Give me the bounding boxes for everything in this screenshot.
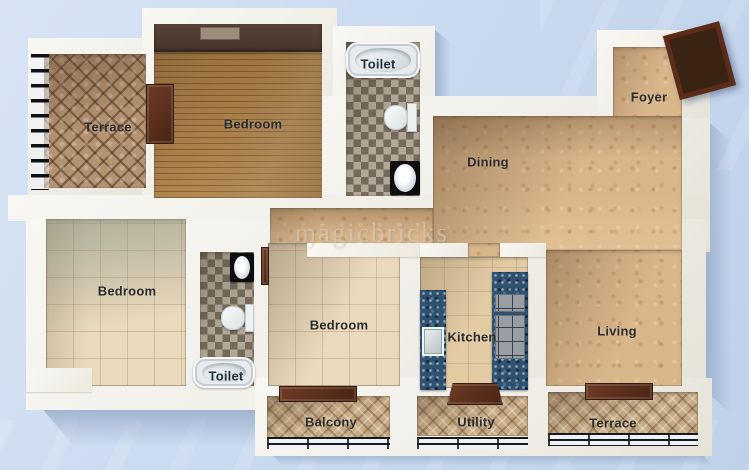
- floor-plan-image: Terrace Bedroom Toilet Foyer Dining Bedr…: [0, 0, 749, 470]
- balcony-railing: [267, 437, 390, 449]
- kitchen-doorway: [468, 243, 500, 257]
- bedroom-left-floor: [46, 219, 186, 386]
- room-label-balcony: Balcony: [305, 415, 357, 430]
- terrace-door: [146, 84, 174, 144]
- washbasin-mid: [230, 253, 254, 282]
- terrace-bottom-railing: [548, 433, 698, 446]
- wall-kitchen-top: [420, 243, 468, 257]
- room-label-bedroom-left: Bedroom: [98, 284, 156, 299]
- room-label-toilet-mid: Toilet: [209, 369, 244, 384]
- balcony-step: [279, 386, 357, 402]
- washbasin-top-bowl: [394, 164, 416, 192]
- dining-floor: [433, 116, 682, 250]
- kitchen-sink: [422, 327, 444, 356]
- room-label-toilet-top: Toilet: [361, 57, 396, 72]
- washbasin-top: [390, 161, 420, 195]
- room-label-utility: Utility: [457, 415, 495, 430]
- stove: [495, 315, 525, 359]
- ac-vent: [200, 27, 240, 40]
- bedroom-mid-floor: [268, 243, 400, 386]
- kitchen-utility-step: [447, 383, 503, 405]
- wall-bedroom-mid-top: [307, 243, 420, 257]
- terrace-bottom-step: [585, 383, 653, 400]
- kitchen-drawers: [495, 294, 525, 312]
- toilet-seat-mid: [221, 306, 245, 330]
- toilet-tank-mid: [245, 304, 254, 332]
- room-label-bedroom-mid: Bedroom: [310, 318, 368, 333]
- terrace-top-railing: [31, 54, 49, 190]
- washbasin-mid-bowl: [234, 256, 250, 279]
- toilet-tank-top: [407, 103, 417, 132]
- wall-kitchen-corner: [500, 243, 546, 257]
- room-label-kitchen: Kitchen: [447, 330, 496, 345]
- room-label-terrace-top: Terrace: [84, 120, 131, 135]
- toilet-seat-top: [384, 105, 408, 130]
- living-floor: [546, 250, 682, 386]
- room-label-dining: Dining: [467, 155, 509, 170]
- room-label-bedroom-top: Bedroom: [224, 117, 282, 132]
- room-label-living: Living: [597, 324, 636, 339]
- room-label-terrace-bottom: Terrace: [589, 416, 636, 431]
- utility-railing: [417, 437, 528, 449]
- wall-notch-bottom-left: [26, 368, 92, 392]
- bedroom-mid-door: [261, 247, 269, 285]
- room-label-foyer: Foyer: [631, 90, 667, 105]
